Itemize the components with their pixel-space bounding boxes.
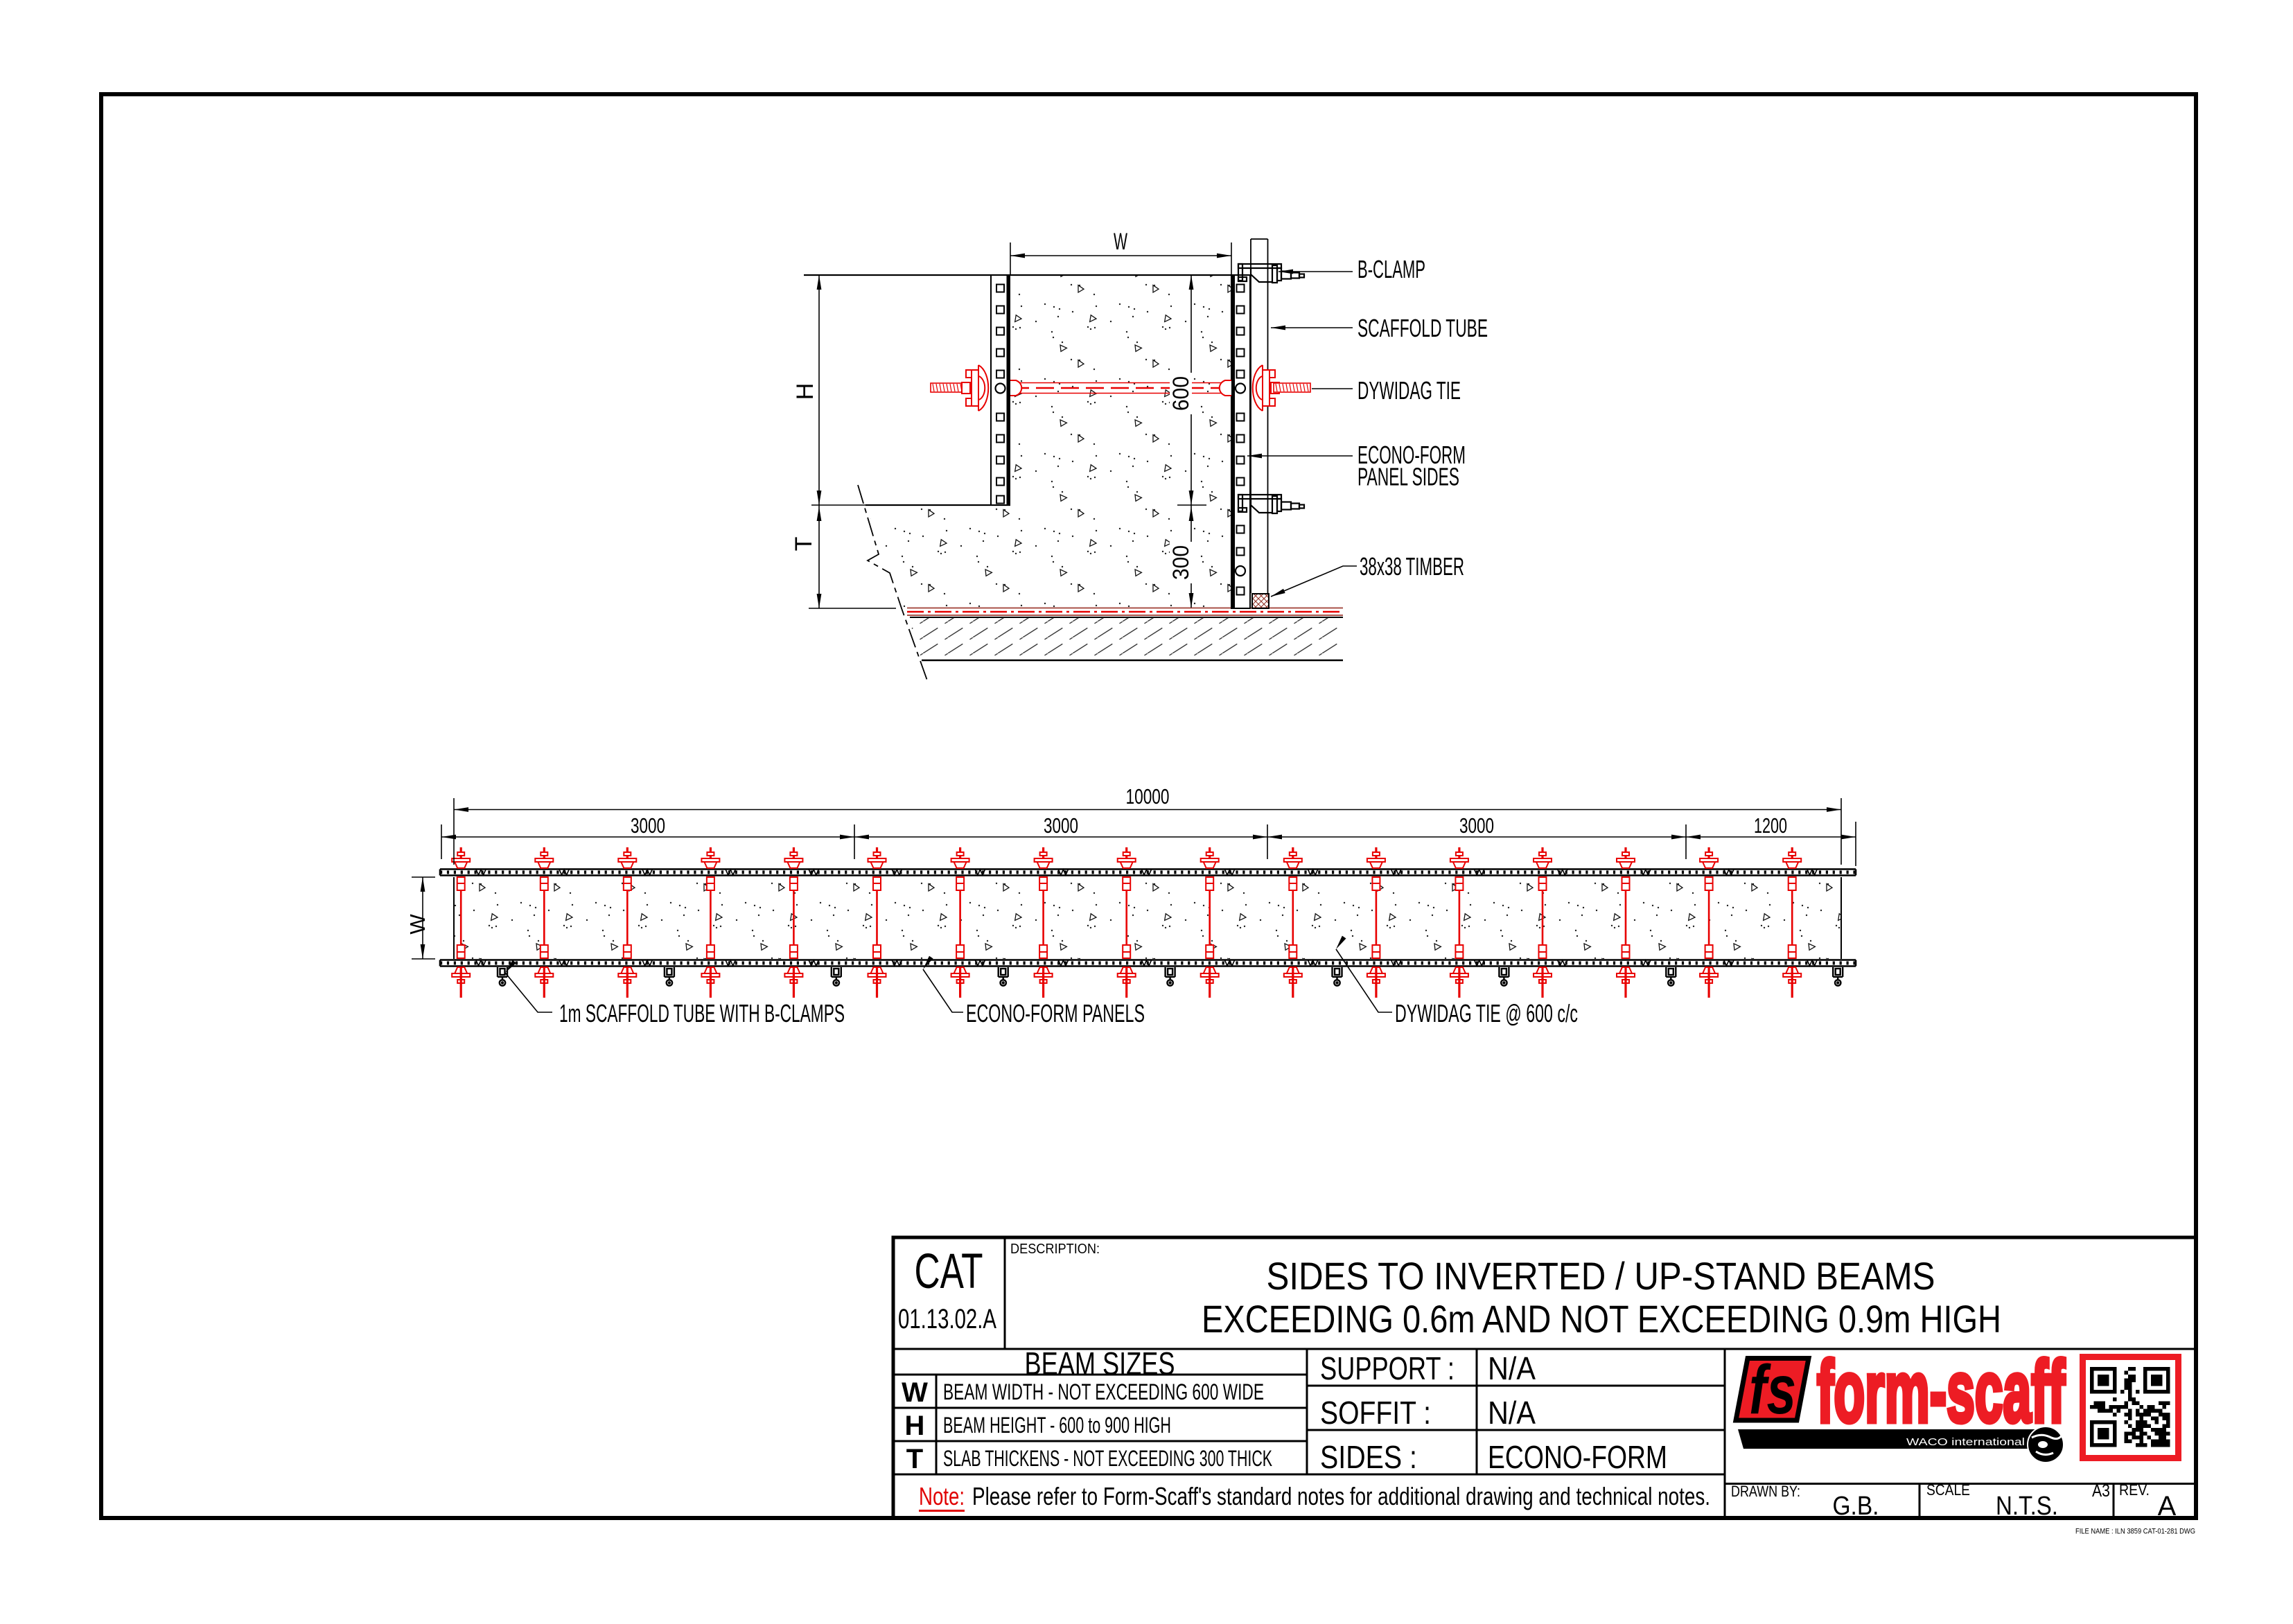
svg-text:WACO international: WACO international (1906, 1436, 2025, 1448)
svg-text:Please refer to Form-Scaff's s: Please refer to Form-Scaff's standard no… (972, 1482, 1710, 1510)
svg-text:DRAWN BY:: DRAWN BY: (1731, 1483, 1800, 1500)
svg-text:W: W (405, 914, 430, 935)
svg-text:fs: fs (1749, 1351, 1796, 1429)
svg-text:38x38 TIMBER: 38x38 TIMBER (1360, 552, 1464, 581)
svg-text:DYWIDAG TIE: DYWIDAG TIE (1358, 376, 1461, 405)
svg-text:600: 600 (1168, 376, 1193, 411)
svg-text:EXCEEDING 0.6m AND NOT EXCEEDI: EXCEEDING 0.6m AND NOT EXCEEDING 0.9m HI… (1202, 1297, 2001, 1341)
svg-text:A3: A3 (2092, 1481, 2110, 1501)
svg-text:1200: 1200 (1754, 813, 1787, 838)
svg-text:N/A: N/A (1488, 1395, 1536, 1431)
svg-text:ECONO-FORM PANELS: ECONO-FORM PANELS (966, 999, 1145, 1027)
svg-text:FILE NAME : ILN 3859 CAT-01-28: FILE NAME : ILN 3859 CAT-01-281 DWG (2075, 1528, 2195, 1536)
svg-text:SUPPORT :: SUPPORT : (1320, 1350, 1455, 1386)
svg-text:SOFFIT :: SOFFIT : (1320, 1395, 1431, 1431)
svg-text:form-scaff: form-scaff (1817, 1343, 2066, 1440)
svg-text:A: A (2158, 1491, 2177, 1521)
svg-text:1m SCAFFOLD TUBE WITH B-CLAMPS: 1m SCAFFOLD TUBE WITH B-CLAMPS (559, 999, 845, 1027)
svg-text:SCAFFOLD TUBE: SCAFFOLD TUBE (1358, 314, 1488, 342)
svg-text:3000: 3000 (631, 813, 665, 838)
svg-text:B-CLAMP: B-CLAMP (1358, 255, 1425, 283)
svg-text:W: W (902, 1377, 928, 1408)
svg-text:T: T (791, 537, 817, 551)
svg-text:SIDES :: SIDES : (1320, 1439, 1417, 1475)
svg-text:ECONO-FORM: ECONO-FORM (1488, 1439, 1667, 1475)
svg-text:G.B.: G.B. (1833, 1492, 1879, 1521)
svg-text:3000: 3000 (1459, 813, 1494, 838)
svg-text:H: H (905, 1411, 925, 1441)
svg-text:01.13.02.A: 01.13.02.A (898, 1304, 996, 1334)
svg-text:Note:: Note: (919, 1482, 965, 1510)
svg-text:PANEL SIDES: PANEL SIDES (1358, 463, 1459, 491)
svg-text:BEAM WIDTH - NOT EXCEEDING 600: BEAM WIDTH - NOT EXCEEDING 600 WIDE (943, 1379, 1264, 1404)
svg-text:H: H (792, 383, 818, 400)
svg-text:T: T (906, 1444, 923, 1474)
svg-text:SCALE: SCALE (1926, 1481, 1970, 1499)
svg-text:REV.: REV. (2119, 1481, 2150, 1499)
svg-text:CAT: CAT (915, 1244, 983, 1299)
svg-text:10000: 10000 (1126, 784, 1170, 809)
svg-text:SLAB THICKENS - NOT EXCEEDING: SLAB THICKENS - NOT EXCEEDING 300 THICK (943, 1446, 1272, 1471)
svg-text:N/A: N/A (1488, 1350, 1536, 1386)
svg-text:DESCRIPTION:: DESCRIPTION: (1010, 1242, 1100, 1257)
svg-text:BEAM SIZES: BEAM SIZES (1025, 1345, 1175, 1382)
svg-text:SIDES TO INVERTED / UP-STAND B: SIDES TO INVERTED / UP-STAND BEAMS (1267, 1254, 1935, 1298)
svg-text:300: 300 (1168, 545, 1193, 580)
svg-text:N.T.S.: N.T.S. (1996, 1492, 2058, 1521)
svg-text:DYWIDAG TIE @ 600 c/c: DYWIDAG TIE @ 600 c/c (1395, 999, 1578, 1027)
svg-text:3000: 3000 (1044, 813, 1078, 838)
svg-text:BEAM HEIGHT - 600 to 900 HIGH: BEAM HEIGHT - 600 to 900 HIGH (943, 1413, 1171, 1438)
svg-text:W: W (1114, 229, 1127, 255)
